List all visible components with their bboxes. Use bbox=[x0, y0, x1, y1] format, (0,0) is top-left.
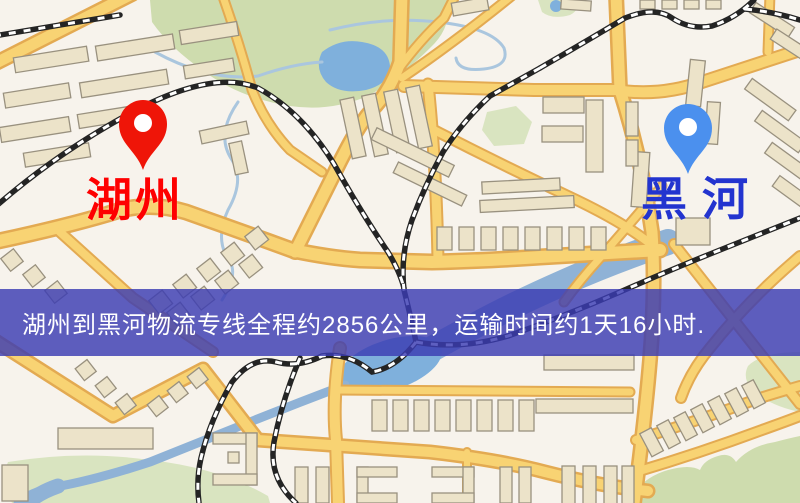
map-container: 湖州 黑河 湖州到黑河物流专线全程约2856公里，运输时间约1天16小时. bbox=[0, 0, 800, 503]
map-canvas[interactable] bbox=[0, 0, 800, 503]
route-banner-text: 湖州到黑河物流专线全程约2856公里，运输时间约1天16小时. bbox=[22, 305, 705, 340]
origin-city-label: 湖州 bbox=[86, 178, 184, 224]
route-banner: 湖州到黑河物流专线全程约2856公里，运输时间约1天16小时. bbox=[0, 289, 800, 356]
destination-city-label: 黑河 bbox=[641, 177, 763, 223]
